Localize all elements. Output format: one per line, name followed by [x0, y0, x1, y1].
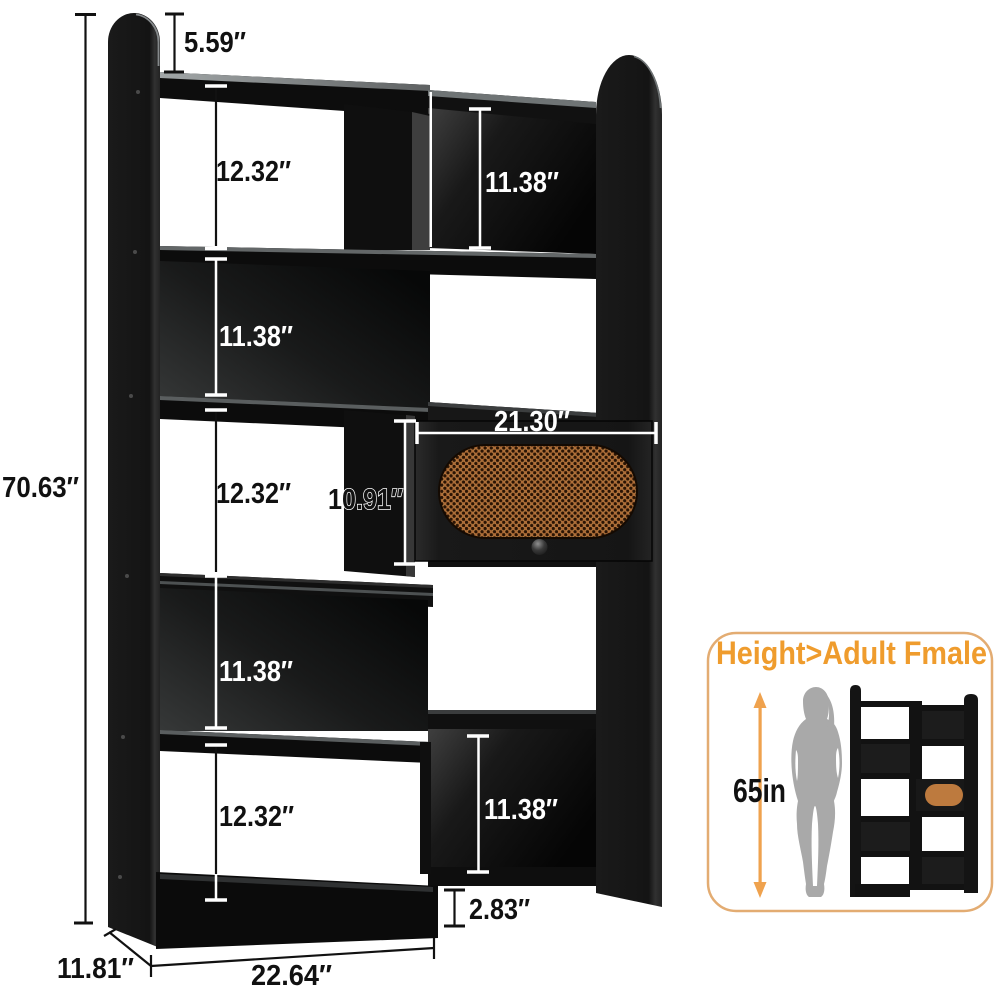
svg-text:22.64″: 22.64″ [251, 960, 332, 992]
svg-text:70.63″: 70.63″ [2, 472, 79, 504]
svg-text:5.59″: 5.59″ [184, 27, 246, 59]
svg-text:11.38″: 11.38″ [219, 656, 293, 688]
svg-text:10.91″: 10.91″ [328, 484, 403, 516]
svg-text:11.38″: 11.38″ [485, 167, 559, 199]
svg-text:11.38″: 11.38″ [484, 794, 558, 826]
svg-text:2.83″: 2.83″ [469, 894, 530, 926]
svg-text:12.32″: 12.32″ [219, 801, 294, 833]
svg-text:21.30″: 21.30″ [494, 406, 570, 438]
svg-text:11.81″: 11.81″ [57, 953, 134, 985]
svg-text:12.32″: 12.32″ [216, 478, 291, 510]
svg-text:65in: 65in [733, 772, 786, 809]
svg-text:12.32″: 12.32″ [216, 156, 291, 188]
svg-text:Height>Adult Fmale: Height>Adult Fmale [716, 635, 987, 671]
svg-text:11.38″: 11.38″ [219, 321, 293, 353]
